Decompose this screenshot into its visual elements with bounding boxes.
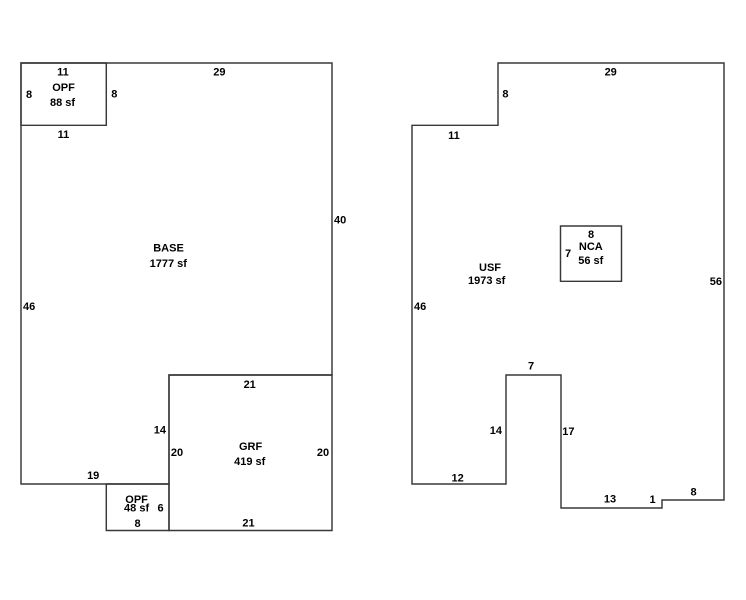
svg-text:11: 11 [448,130,460,142]
svg-text:8: 8 [691,486,697,498]
svg-text:14: 14 [490,425,503,437]
svg-text:8: 8 [588,229,594,241]
svg-text:1777 sf: 1777 sf [150,258,188,270]
svg-text:7: 7 [528,360,534,372]
svg-text:48 sf: 48 sf [124,503,149,515]
svg-text:1973 sf: 1973 sf [468,275,506,287]
svg-text:14: 14 [154,425,167,437]
svg-text:NCA: NCA [579,241,603,253]
svg-text:OPF: OPF [52,82,75,94]
svg-text:21: 21 [242,517,254,529]
svg-text:19: 19 [87,470,99,482]
svg-text:56: 56 [710,276,722,288]
svg-text:12: 12 [451,473,463,485]
svg-text:8: 8 [134,518,140,530]
svg-text:29: 29 [605,67,617,79]
svg-text:46: 46 [414,301,426,313]
svg-text:13: 13 [604,494,616,506]
svg-text:GRF: GRF [239,441,263,453]
svg-text:419 sf: 419 sf [234,456,266,468]
svg-text:7: 7 [565,248,571,260]
svg-text:11: 11 [57,67,69,79]
svg-text:8: 8 [111,89,117,101]
svg-text:17: 17 [562,426,574,438]
svg-text:29: 29 [213,67,225,79]
svg-text:56 sf: 56 sf [578,255,603,267]
svg-text:46: 46 [23,301,35,313]
svg-text:11: 11 [58,129,70,141]
svg-text:20: 20 [317,447,329,459]
svg-text:8: 8 [502,89,508,101]
svg-text:40: 40 [334,215,346,227]
svg-text:BASE: BASE [153,242,184,254]
svg-text:USF: USF [479,262,501,274]
svg-text:6: 6 [157,503,163,515]
svg-text:21: 21 [244,379,256,391]
svg-text:8: 8 [26,89,32,101]
svg-text:88 sf: 88 sf [50,97,75,109]
svg-text:20: 20 [171,447,183,459]
svg-text:1: 1 [649,494,655,506]
